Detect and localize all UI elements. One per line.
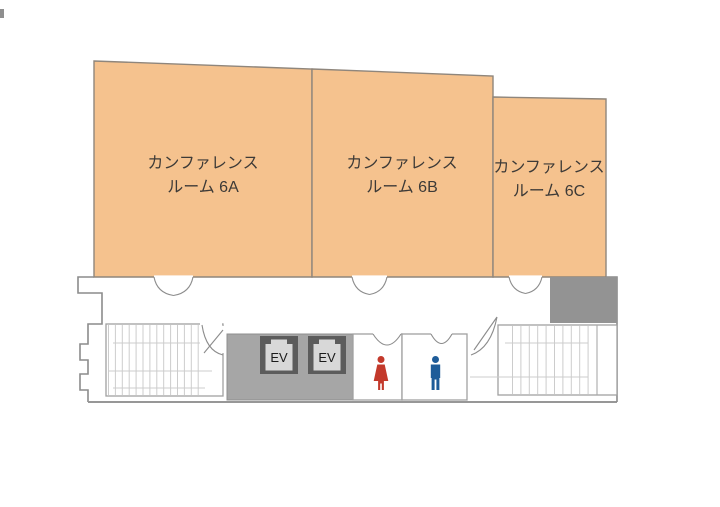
room-6c-label-line2: ルーム 6C: [513, 183, 585, 200]
room-6b-label-line1: カンファレンス: [346, 155, 457, 172]
room-6b-label-line2: ルーム 6B: [366, 179, 438, 196]
door-arc-room-6b: [352, 277, 387, 295]
elevator-1: EV: [260, 336, 298, 374]
stair-treads-left: [108, 325, 202, 395]
service-area-block: [550, 277, 617, 323]
room-6c-label-line1: カンファレンス: [493, 159, 604, 176]
staircase-right: [470, 317, 617, 395]
room-6a-label-line2: ルーム 6A: [167, 179, 239, 196]
door-arc-room-6c: [509, 277, 542, 294]
room-doors: [154, 275, 542, 295]
room-6a-label-line1: カンファレンス: [147, 155, 258, 172]
screen-edge-artifact: [0, 9, 4, 18]
floor-map: カンファレンス ルーム 6A カンファレンス ルーム 6B カンファレンス ルー…: [0, 0, 720, 507]
door-arc-room-6a: [154, 277, 193, 296]
staircase-left: [106, 322, 225, 396]
elevator-2-label: EV: [318, 350, 336, 365]
restrooms: [353, 332, 467, 400]
conference-room-6b: [312, 69, 493, 277]
floor-map-page: カンファレンス ルーム 6A カンファレンス ルーム 6B カンファレンス ルー…: [0, 0, 720, 507]
door-arc-staircase-right: [471, 317, 497, 355]
elevator-2: EV: [308, 336, 346, 374]
outer-wall: [78, 277, 102, 402]
elevator-1-label: EV: [270, 350, 288, 365]
stair-treads-right: [512, 326, 596, 394]
